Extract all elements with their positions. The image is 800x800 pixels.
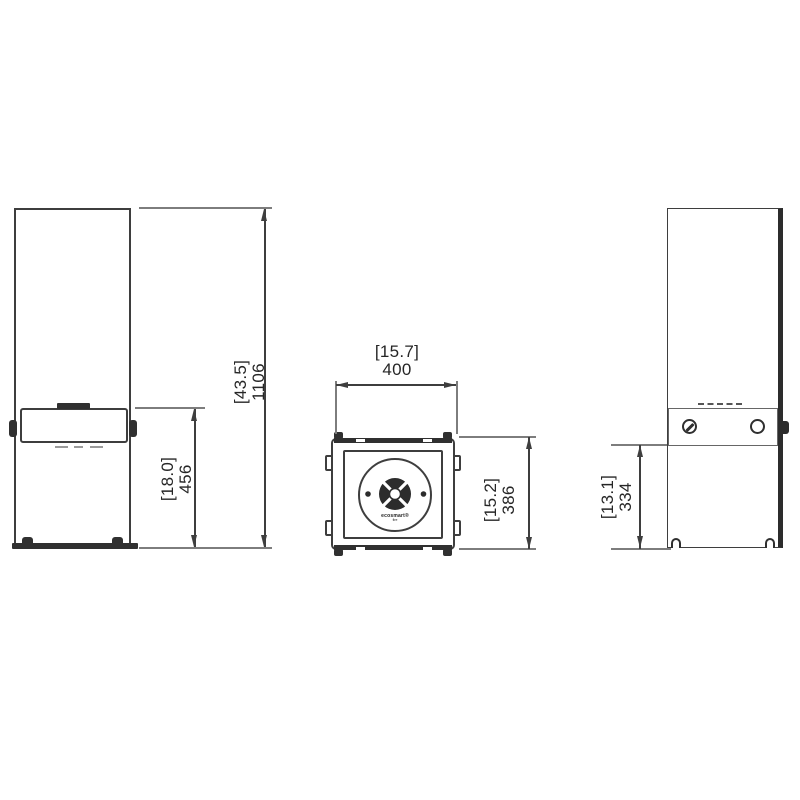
top-edge-notch (356, 439, 365, 442)
arrowhead-icon (637, 536, 643, 548)
arrowhead-icon (336, 382, 348, 388)
screw-slot-icon (685, 423, 694, 432)
technical-drawing-canvas: [43.5] 1106 [18.0] 456 (0, 0, 800, 800)
side-clip (325, 520, 333, 536)
side-body-outline (667, 208, 783, 548)
panel-height-mm: 334 (617, 482, 635, 511)
overall-height-label: [43.5] 1106 (231, 322, 269, 442)
front-hidden-edge-dash (55, 446, 68, 448)
top-front-edge (334, 438, 452, 443)
side-hidden-handle-dash (698, 403, 742, 405)
front-foot-right (112, 537, 123, 544)
front-hidden-edge-dash (90, 446, 103, 448)
front-drawer-handle (57, 403, 90, 409)
panel-height-inches: [13.1] (599, 475, 617, 519)
extension-line-depth-top (459, 436, 536, 438)
dimension-line-panel-height (639, 445, 641, 549)
side-foot-right (765, 538, 775, 548)
depth-inches: [15.2] (482, 478, 500, 522)
extension-line-right (456, 381, 458, 434)
front-side-clip-left (9, 420, 17, 437)
width-inches: [15.7] (375, 343, 419, 361)
side-foot-left (671, 538, 681, 548)
front-hidden-edge-dash (74, 446, 83, 448)
corner-clip (443, 432, 452, 439)
panel-hole (750, 419, 765, 434)
dimension-line-width (336, 384, 456, 386)
screw-icon (365, 491, 371, 497)
depth-mm: 386 (500, 485, 518, 514)
side-clip (453, 455, 461, 471)
depth-label: [15.2] 386 (481, 440, 519, 560)
brand-logo-line2: fire (369, 519, 421, 523)
burner-height-label: [18.0] 456 (158, 419, 196, 539)
width-label: [15.7] 400 (341, 342, 453, 380)
side-clip (453, 520, 461, 536)
side-clip-right (782, 421, 789, 434)
top-edge-notch (423, 547, 432, 550)
overall-height-inches: [43.5] (232, 360, 250, 404)
top-edge-notch (356, 547, 365, 550)
top-edge-notch (423, 439, 432, 442)
panel-height-label: [13.1] 334 (598, 437, 636, 557)
front-foot-left (22, 537, 33, 544)
corner-clip (334, 549, 343, 556)
width-mm: 400 (382, 361, 411, 379)
burner-center-cap (389, 488, 400, 499)
corner-clip (443, 549, 452, 556)
extension-line-bottom (139, 547, 272, 549)
extension-line-left (335, 381, 337, 434)
front-burner-drawer (20, 408, 128, 443)
extension-line-top (139, 207, 272, 209)
burner-assembly (354, 454, 436, 536)
burner-height-inches: [18.0] (159, 457, 177, 501)
arrowhead-icon (444, 382, 456, 388)
arrowhead-icon (261, 209, 267, 221)
side-clip (325, 455, 333, 471)
ignition-screw (682, 419, 697, 434)
arrowhead-icon (637, 445, 643, 457)
brand-logo: ecosmart® fire (369, 514, 421, 523)
top-rear-edge (334, 545, 452, 550)
front-body-outline (14, 208, 131, 545)
burner-height-mm: 456 (177, 464, 195, 493)
front-side-clip-right (129, 420, 137, 437)
dimension-line-depth (528, 437, 530, 549)
arrowhead-icon (261, 535, 267, 547)
arrowhead-icon (526, 437, 532, 449)
arrowhead-icon (526, 537, 532, 549)
screw-icon (421, 491, 427, 497)
overall-height-mm: 1106 (250, 363, 268, 401)
